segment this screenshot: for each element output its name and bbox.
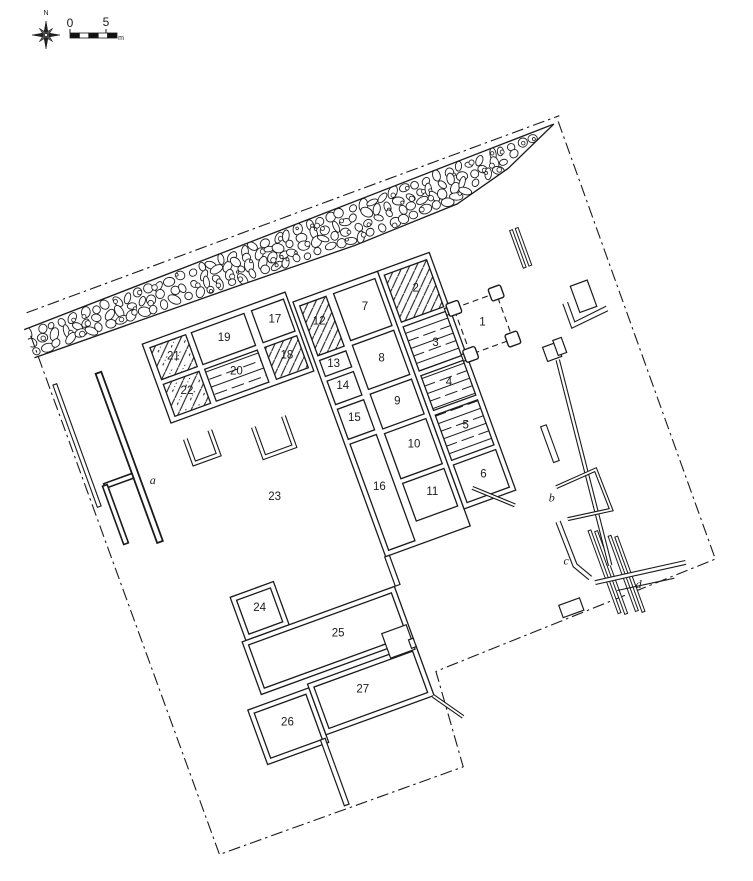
room-label-10: 10 (408, 438, 421, 450)
feature-label-c: c (564, 553, 570, 567)
room-label-8: 8 (378, 352, 384, 364)
scale-zero-label: 0 (67, 16, 74, 30)
room-label-14: 14 (336, 380, 349, 392)
room-label-11: 11 (426, 486, 438, 498)
feature-label-b: b (549, 491, 555, 505)
scale-bar: 05m (67, 15, 124, 42)
room-label-26: 26 (281, 716, 294, 728)
room-label-22: 22 (181, 385, 194, 397)
room-label-27: 27 (356, 684, 369, 696)
room-label-17: 17 (268, 313, 281, 325)
pillar-base (488, 285, 505, 302)
room-label-13: 13 (327, 358, 340, 370)
room-label-4: 4 (446, 377, 453, 389)
room-label-9: 9 (394, 396, 400, 408)
room-label-16: 16 (373, 481, 386, 493)
feature-label-d: d (636, 577, 643, 591)
room-label-18: 18 (281, 349, 294, 361)
room-label-25: 25 (332, 628, 345, 640)
room-label-3: 3 (432, 337, 438, 349)
room-label-24: 24 (253, 602, 266, 614)
room-label-20: 20 (230, 366, 243, 378)
room-label-23: 23 (268, 491, 281, 503)
scale-five-label: 5 (103, 15, 110, 29)
room-label-15: 15 (348, 412, 361, 424)
feature-label-a: a (150, 473, 156, 487)
rooms (125, 248, 569, 758)
room-label-5: 5 (462, 420, 468, 432)
site-plan-page: 1234567891011121314151617181920212223242… (0, 0, 753, 881)
room-label-12: 12 (313, 315, 326, 327)
pillar-base (505, 331, 522, 348)
room-label-7: 7 (362, 301, 368, 313)
room-label-1: 1 (479, 317, 485, 329)
compass-rose: N (32, 10, 60, 49)
room-label-19: 19 (218, 332, 231, 344)
site-plan: 1234567891011121314151617181920212223242… (0, 0, 753, 881)
compass-north-label: N (43, 10, 48, 17)
room-label-6: 6 (480, 468, 486, 480)
rotated-plan: 1234567891011121314151617181920212223242… (14, 116, 753, 858)
room-label-2: 2 (413, 282, 419, 294)
scale-unit-label: m (118, 35, 124, 42)
room-label-21: 21 (167, 350, 180, 362)
